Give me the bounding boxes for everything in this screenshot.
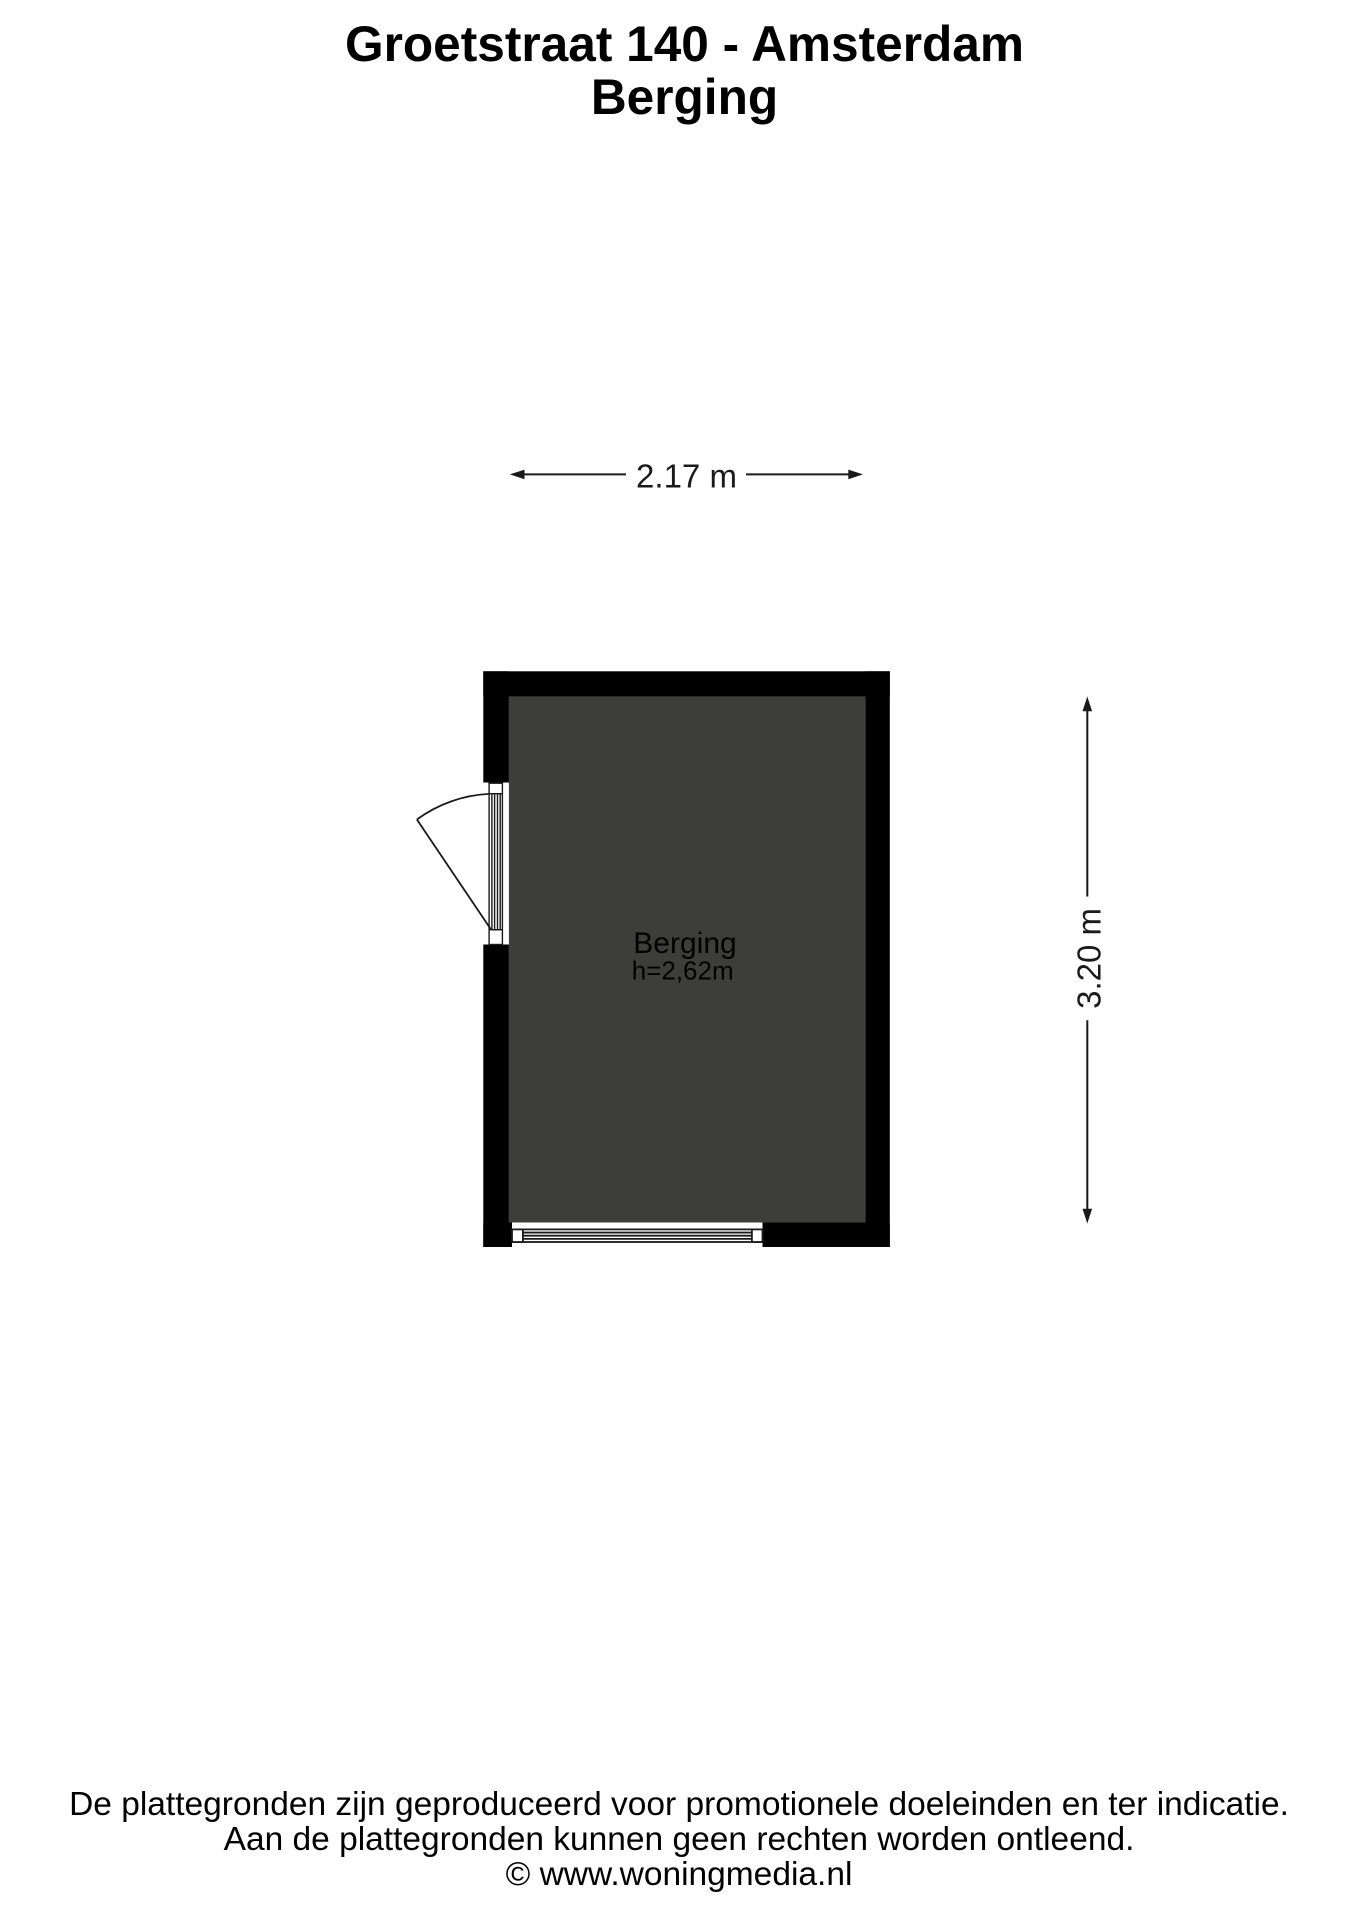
svg-text:2.17 m: 2.17 m [636, 458, 737, 495]
svg-text:3.20 m: 3.20 m [1071, 908, 1108, 1009]
svg-text:h=2,62m: h=2,62m [632, 956, 734, 986]
